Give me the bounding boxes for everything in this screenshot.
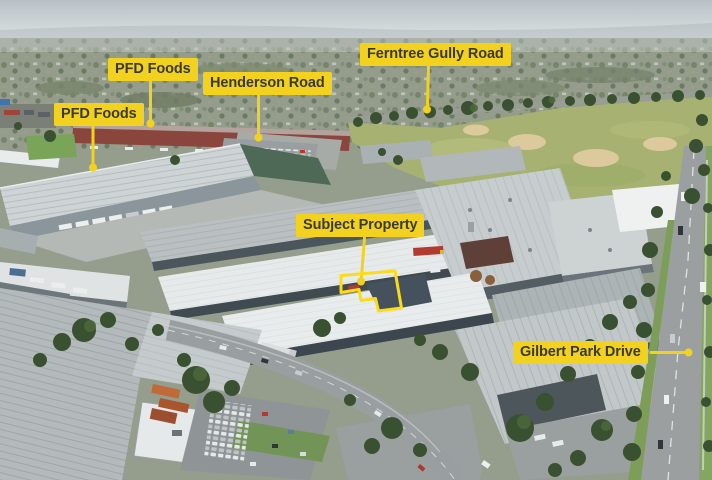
label-ferntree-gully-road: Ferntree Gully Road [360,43,511,66]
aerial-photo-art [0,0,712,480]
label-henderson-road: Henderson Road [203,72,332,95]
sky [0,0,712,42]
label-pfd-foods-upper: PFD Foods [108,58,198,81]
label-gilbert-park-drive: Gilbert Park Drive [513,341,648,364]
label-subject-property: Subject Property [296,214,424,237]
label-pfd-foods-lower: PFD Foods [54,103,144,126]
aerial-photo: PFD Foods PFD Foods Henderson Road Fernt… [0,0,712,480]
